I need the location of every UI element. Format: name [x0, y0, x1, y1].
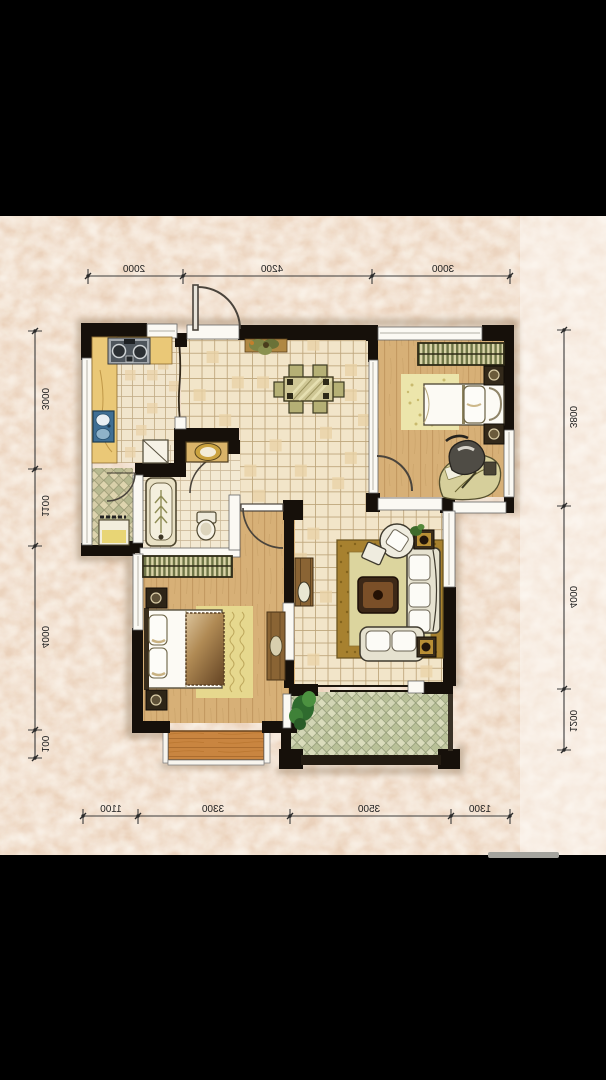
svg-text:3000: 3000: [431, 264, 454, 275]
svg-text:3500: 3500: [357, 804, 380, 815]
svg-text:1100: 1100: [39, 495, 50, 517]
svg-text:3000: 3000: [39, 387, 50, 410]
svg-text:3300: 3300: [201, 804, 224, 815]
svg-text:2000: 2000: [122, 264, 145, 275]
svg-text:3800: 3800: [567, 405, 578, 428]
svg-text:4000: 4000: [567, 585, 578, 608]
svg-text:4000: 4000: [39, 625, 50, 648]
svg-text:1300: 1300: [468, 804, 491, 815]
svg-text:1100: 1100: [100, 804, 122, 815]
svg-text:1200: 1200: [567, 709, 578, 732]
svg-text:100: 100: [39, 735, 50, 752]
svg-text:4200: 4200: [260, 264, 283, 275]
